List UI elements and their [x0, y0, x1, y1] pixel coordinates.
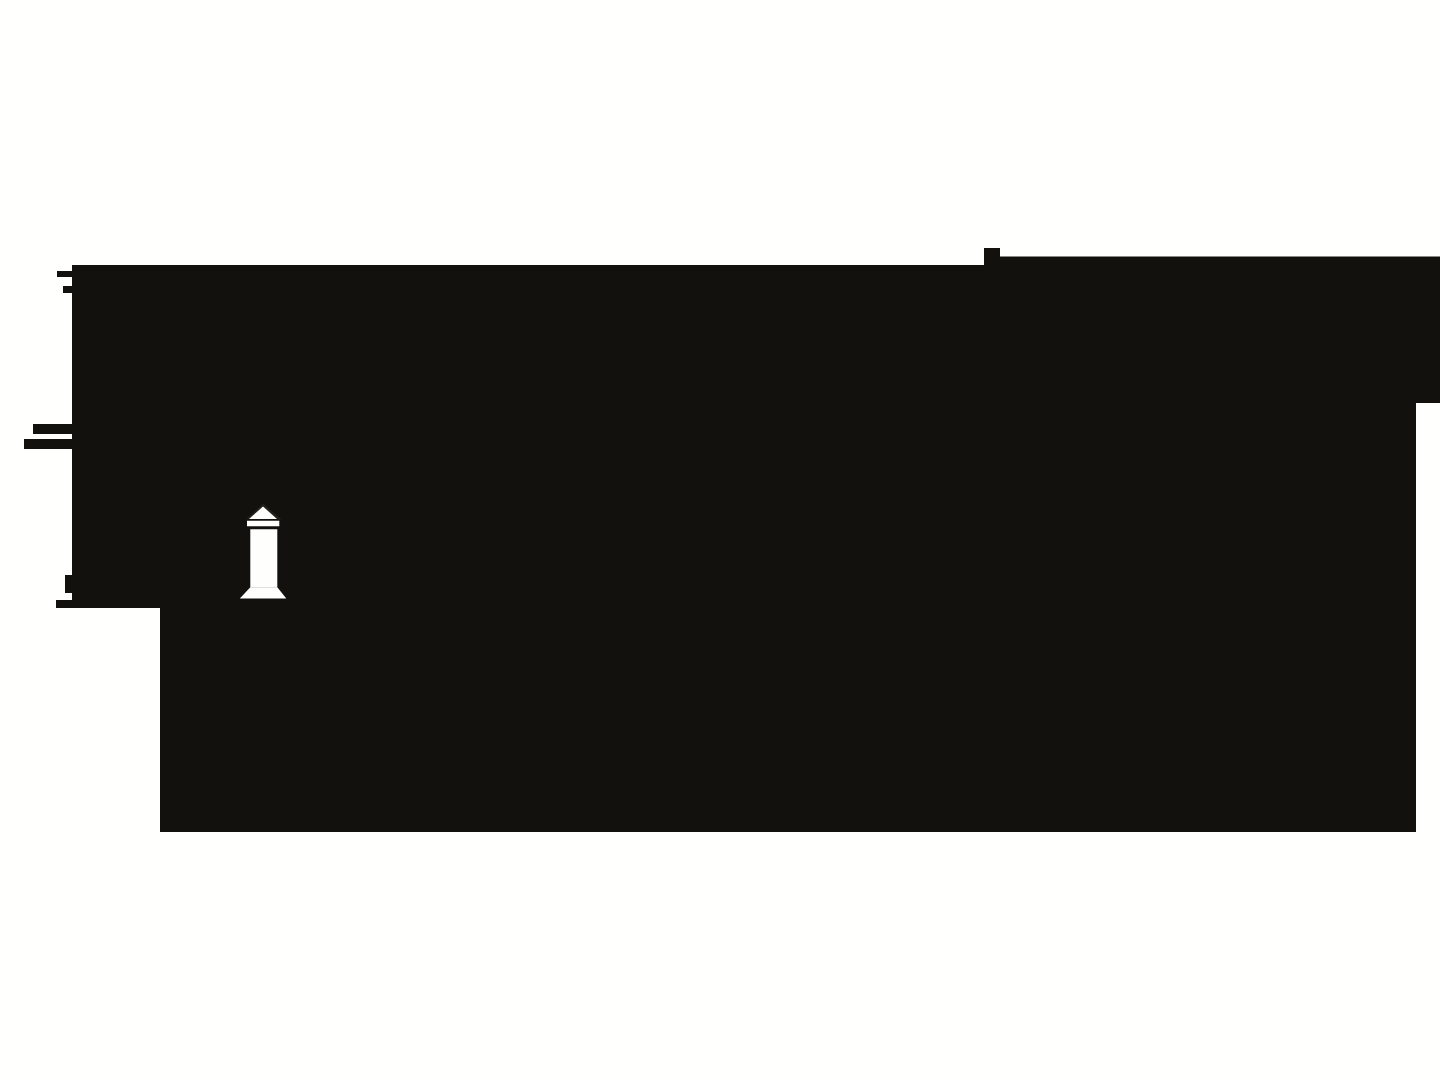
silhouette-graphic [0, 0, 1440, 1080]
obelisk-shaft-icon [250, 529, 277, 587]
page-background [0, 0, 1440, 1080]
silhouette-mass [24, 248, 1440, 832]
obelisk-band-icon [247, 521, 279, 527]
